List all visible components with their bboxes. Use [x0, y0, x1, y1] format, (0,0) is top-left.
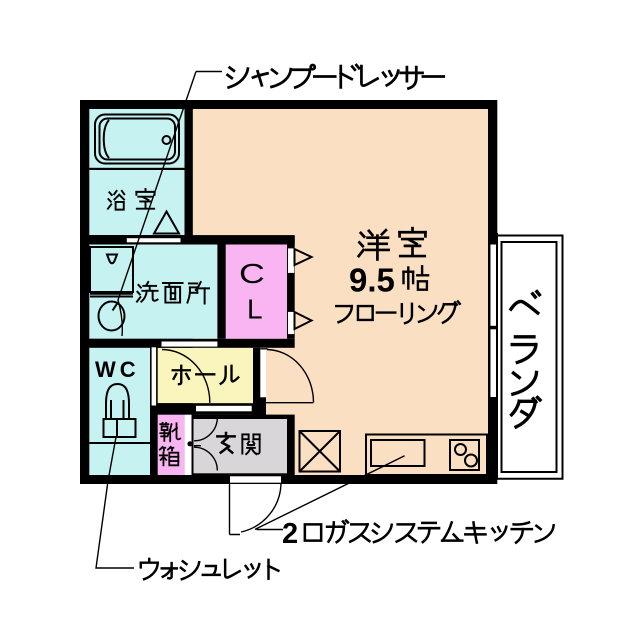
svg-text:C: C: [239, 258, 265, 289]
svg-text:9.5: 9.5: [349, 262, 395, 299]
svg-text:2: 2: [282, 518, 298, 550]
svg-text:L: L: [247, 294, 263, 325]
svg-text:WC: WC: [95, 357, 140, 382]
